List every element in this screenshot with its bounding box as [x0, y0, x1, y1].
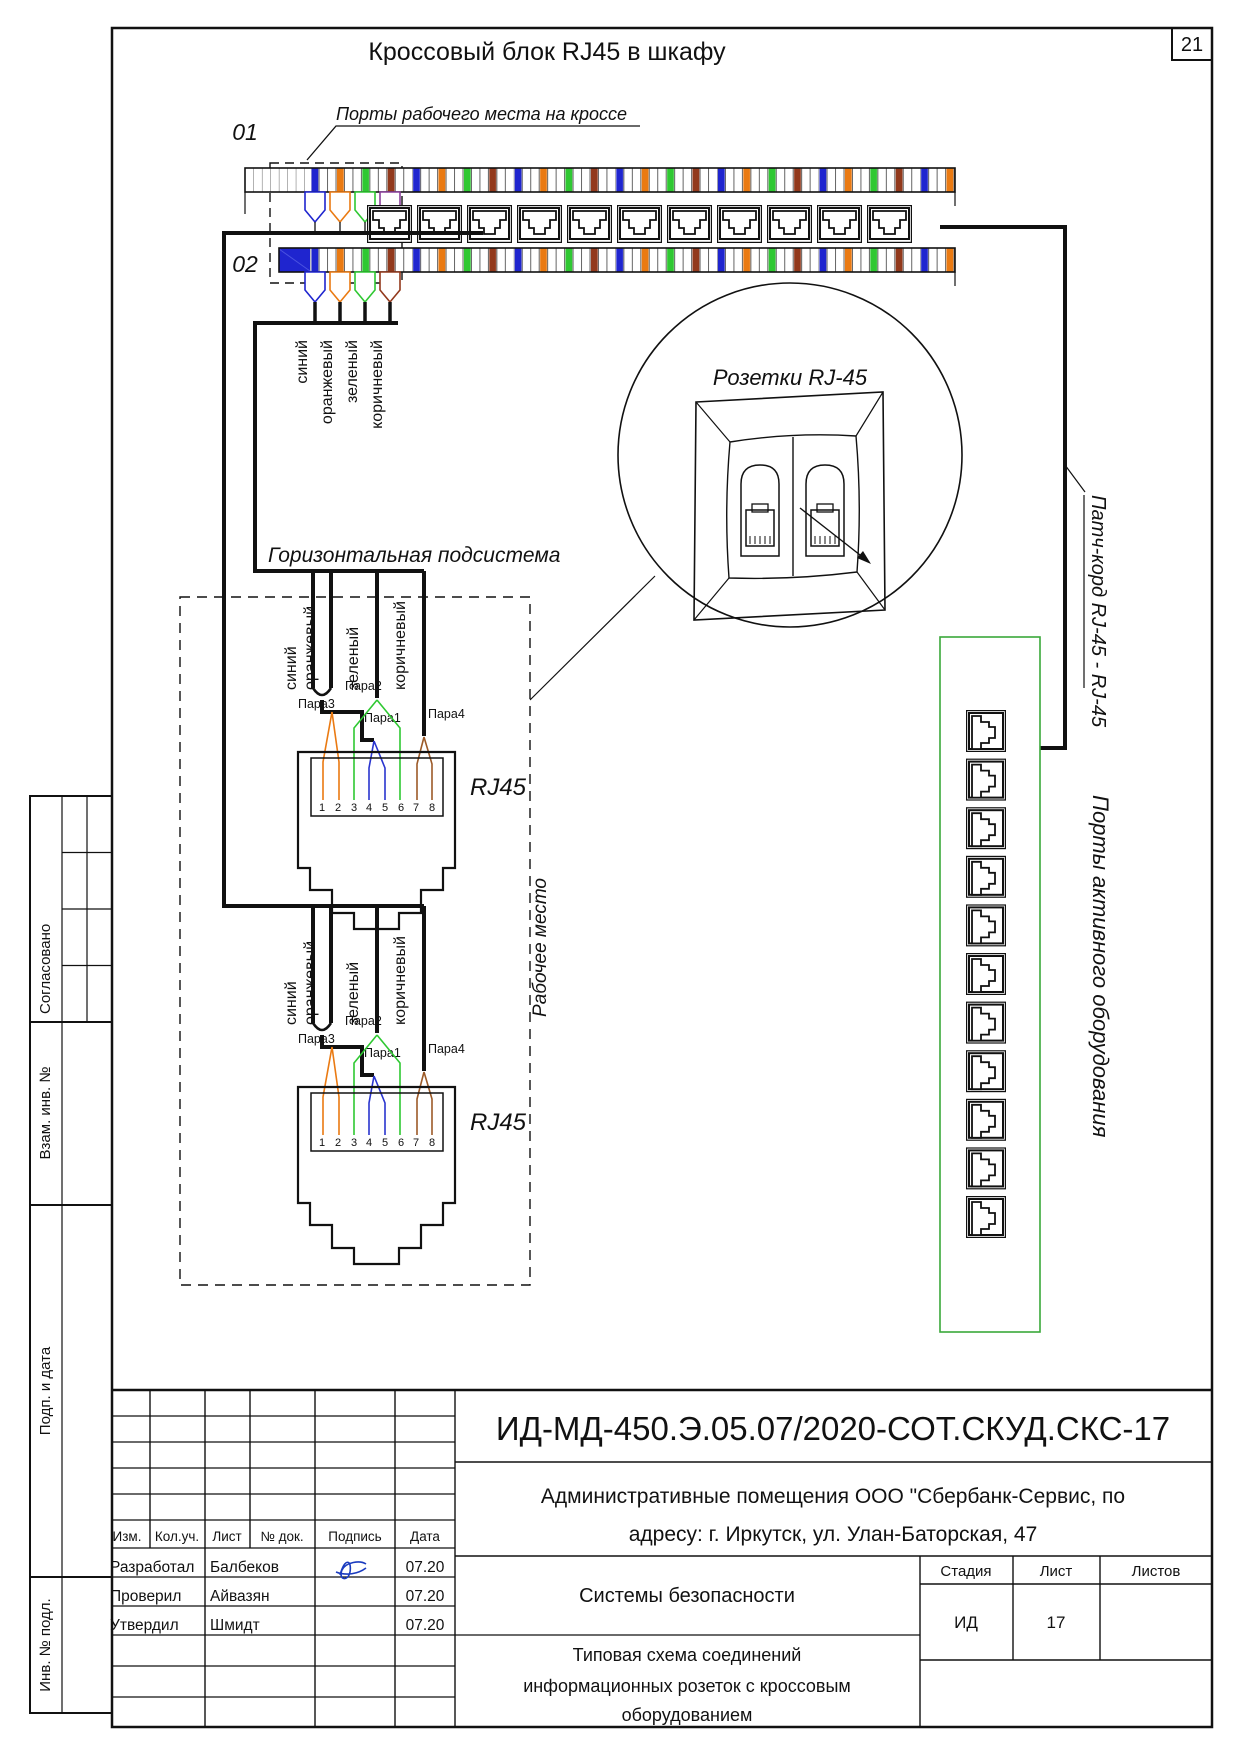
- svg-text:4: 4: [366, 802, 372, 814]
- rj45-port-icon: [967, 905, 1006, 946]
- horizontal-subsystem-label: Горизонтальная подсистема: [268, 544, 560, 567]
- rj45-jack-icon: [568, 206, 612, 243]
- date: 07.20: [406, 1588, 445, 1605]
- rj45-port-icon: [967, 1099, 1006, 1140]
- port-02-label: 02: [232, 251, 258, 277]
- doc-number: ИД-МД-450.Э.05.07/2020-СОТ.СКУД.СКС-17: [496, 1410, 1170, 1447]
- svg-text:7: 7: [413, 1137, 419, 1149]
- svg-text:6: 6: [398, 802, 404, 814]
- svg-text:Изм.: Изм.: [113, 1529, 142, 1544]
- address-line-2: адресу: г. Иркутск, ул. Улан-Баторская, …: [629, 1523, 1038, 1546]
- role: Разработал: [110, 1559, 194, 1576]
- pair-label: Пара2: [345, 1014, 382, 1028]
- sidebar-label: Согласовано: [37, 924, 54, 1014]
- svg-text:Листов: Листов: [1132, 1563, 1181, 1580]
- svg-text:5: 5: [382, 1137, 388, 1149]
- rj45-jack-icon: [668, 206, 712, 243]
- ports-label: Порты рабочего места на кроссе: [336, 104, 627, 124]
- wire-color-label: оранжевый: [319, 340, 336, 424]
- rj45-label: RJ45: [470, 1109, 527, 1136]
- drawing-sheet: 21 Кроссовый блок RJ45 в шкафу Порты раб…: [0, 0, 1240, 1755]
- wire-color-label: синий: [283, 646, 300, 690]
- svg-text:7: 7: [413, 802, 419, 814]
- workplace-label: Рабочее место: [530, 878, 551, 1017]
- sheet-value: 17: [1047, 1613, 1066, 1632]
- sidebar-label: Подп. и дата: [37, 1346, 54, 1435]
- svg-text:2: 2: [335, 1137, 341, 1149]
- svg-text:4: 4: [366, 1137, 372, 1149]
- pair-label: Пара4: [428, 707, 465, 721]
- rj45-jack-icon: [518, 206, 562, 243]
- wire-color-label: зеленый: [344, 340, 361, 403]
- svg-text:8: 8: [429, 1137, 435, 1149]
- rj45-port-icon: [967, 759, 1006, 800]
- role: Утвердил: [110, 1617, 179, 1634]
- wire-color-label: синий: [294, 340, 311, 384]
- rj45-jack-icon: [618, 206, 662, 243]
- svg-text:Стадия: Стадия: [940, 1563, 991, 1580]
- rj45-jack-icon: [718, 206, 762, 243]
- svg-text:Лист: Лист: [212, 1529, 241, 1544]
- cross-jack-row: [368, 206, 912, 243]
- pair-label: Пара2: [345, 679, 382, 693]
- wire-color-label: коричневый: [369, 340, 386, 429]
- wire-color-label: коричневый: [392, 936, 409, 1025]
- svg-text:5: 5: [382, 802, 388, 814]
- page-title: Кроссовый блок RJ45 в шкафу: [368, 38, 726, 66]
- scheme-line-1: Типовая схема соединений: [573, 1645, 802, 1665]
- date: 07.20: [406, 1559, 445, 1576]
- rj45-jack-icon: [818, 206, 862, 243]
- rj45-port-icon: [967, 1002, 1006, 1043]
- role: Проверил: [110, 1588, 181, 1605]
- rj45-port-icon: [967, 1148, 1006, 1189]
- svg-text:3: 3: [351, 802, 357, 814]
- rj45-jack-icon: [868, 206, 912, 243]
- rj45-port-icon: [967, 1197, 1006, 1238]
- svg-text:3: 3: [351, 1137, 357, 1149]
- address-line-1: Административные помещения ООО "Сбербанк…: [541, 1485, 1125, 1508]
- pair-label: Пара4: [428, 1042, 465, 1056]
- svg-text:8: 8: [429, 802, 435, 814]
- rj45-port-icon: [967, 856, 1006, 897]
- system-name: Системы безопасности: [579, 1585, 795, 1607]
- rj45-port-icon: [967, 808, 1006, 849]
- scheme-line-3: оборудованием: [622, 1705, 753, 1725]
- date: 07.20: [406, 1617, 445, 1634]
- svg-text:№ док.: № док.: [260, 1529, 303, 1544]
- name: Айвазян: [210, 1588, 270, 1605]
- sidebar-label: Взам. инв. №: [37, 1067, 54, 1160]
- svg-text:Дата: Дата: [410, 1529, 440, 1544]
- stage-headers: Стадия Лист Листов: [940, 1563, 1180, 1580]
- rj45-jack-icon: [368, 206, 412, 243]
- rj45-port-icon: [967, 954, 1006, 995]
- rj45-port-icon: [967, 1051, 1006, 1092]
- wire-color-label: оранжевый: [302, 606, 319, 690]
- svg-text:Лист: Лист: [1040, 1563, 1073, 1580]
- stage-value: ИД: [954, 1613, 978, 1632]
- rj45-port-icon: [967, 711, 1006, 752]
- scheme-line-2: информационных розеток с кроссовым: [523, 1676, 851, 1696]
- pair-label: Пара3: [298, 697, 335, 711]
- svg-text:6: 6: [398, 1137, 404, 1149]
- sockets-label: Розетки RJ-45: [713, 365, 868, 390]
- sidebar-label: Инв. № подл.: [37, 1598, 54, 1691]
- name: Балбеков: [210, 1559, 279, 1576]
- svg-text:1: 1: [319, 1137, 325, 1149]
- svg-text:2: 2: [335, 802, 341, 814]
- wire-color-label: оранжевый: [302, 941, 319, 1025]
- active-ports-label: Порты активного оборудования: [1088, 795, 1113, 1138]
- wire-color-label: синий: [283, 981, 300, 1025]
- svg-text:Подпись: Подпись: [328, 1529, 381, 1544]
- rj45-jack-icon: [468, 206, 512, 243]
- wire-color-label: коричневый: [392, 601, 409, 690]
- rj45-jack-icon: [768, 206, 812, 243]
- svg-text:1: 1: [319, 802, 325, 814]
- patch-cord-label: Патч-корд RJ-45 - RJ-45: [1087, 495, 1109, 728]
- rj45-label: RJ45: [470, 774, 527, 801]
- name: Шмидт: [210, 1617, 260, 1634]
- pair-label: Пара3: [298, 1032, 335, 1046]
- rj45-jack-icon: [418, 206, 462, 243]
- page-number: 21: [1181, 34, 1203, 56]
- svg-text:Кол.уч.: Кол.уч.: [155, 1529, 199, 1544]
- port-01-label: 01: [232, 119, 258, 145]
